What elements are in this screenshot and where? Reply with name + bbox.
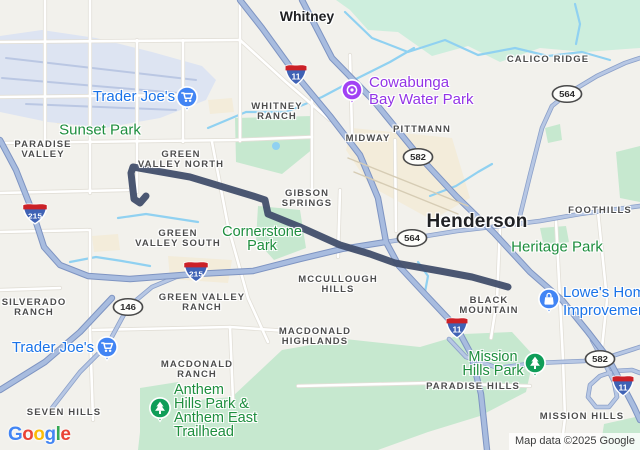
label-silverado-ranch-line: RANCH <box>2 308 67 318</box>
label-black-mountain: BLACKMOUNTAIN <box>459 296 518 316</box>
label-henderson-line: Henderson <box>426 211 527 233</box>
label-whitney[interactable]: Whitney <box>280 8 334 24</box>
label-paradise-hills: PARADISE HILLS <box>426 382 520 392</box>
label-silverado-ranch: SILVERADORANCH <box>2 298 67 318</box>
label-green-valley-south-line: VALLEY SOUTH <box>135 239 221 249</box>
label-mission-hills-park[interactable]: MissionHills Park <box>462 350 523 378</box>
label-trader-joes-south[interactable]: Trader Joe's <box>12 339 94 357</box>
label-whitney-ranch: WHITNEYRANCH <box>251 102 303 122</box>
label-mccullough-hills-line: HILLS <box>298 285 378 295</box>
label-macdonald-ranch-line: RANCH <box>161 370 233 380</box>
label-green-valley-ranch: GREEN VALLEYRANCH <box>159 293 245 313</box>
label-foothills: FOOTHILLS <box>568 206 632 216</box>
label-anthem-hills-park[interactable]: AnthemHills Park &Anthem EastTrailhead <box>174 383 257 439</box>
label-calico-ridge: CALICO RIDGE <box>507 55 589 65</box>
label-midway: MIDWAY <box>346 134 391 144</box>
label-whitney-line: Whitney <box>280 8 334 24</box>
label-mission-hills-park-line: Hills Park <box>462 364 523 378</box>
google-logo-letter: G <box>8 424 22 445</box>
google-logo-letter: g <box>45 424 56 445</box>
label-whitney-ranch-line: RANCH <box>251 112 303 122</box>
label-paradise-valley-line: VALLEY <box>14 150 71 160</box>
label-trader-joes-north-line: Trader Joe's <box>93 88 175 106</box>
label-cowabunga[interactable]: CowabungaBay Water Park <box>369 74 473 108</box>
label-green-valley-ranch-line: RANCH <box>159 303 245 313</box>
label-foothills-line: FOOTHILLS <box>568 206 632 216</box>
label-anthem-hills-park-line: Trailhead <box>174 425 257 439</box>
label-paradise-valley: PARADISEVALLEY <box>14 140 71 160</box>
google-logo-letter: o <box>33 424 44 445</box>
google-logo[interactable]: Google <box>8 424 70 446</box>
google-logo-letter: o <box>22 424 33 445</box>
label-cowabunga-line: Cowabunga <box>369 74 473 91</box>
label-macdonald-ranch: MACDONALDRANCH <box>161 360 233 380</box>
label-sunset-park[interactable]: Sunset Park <box>59 123 141 138</box>
label-heritage-park-line: Heritage Park <box>511 240 603 255</box>
label-pittmann: PITTMANN <box>393 125 451 135</box>
label-seven-hills-line: SEVEN HILLS <box>27 408 101 418</box>
label-cowabunga-line: Bay Water Park <box>369 91 473 108</box>
label-henderson[interactable]: Henderson <box>426 211 527 233</box>
label-anthem-hills-park-line: Hills Park & <box>174 397 257 411</box>
label-lowes[interactable]: Lowe's HomeImprovement <box>563 284 640 320</box>
label-green-valley-south: GREENVALLEY SOUTH <box>135 229 221 249</box>
label-cornerstone-park[interactable]: CornerstonePark <box>222 225 302 253</box>
label-seven-hills: SEVEN HILLS <box>27 408 101 418</box>
label-mission-hills: MISSION HILLS <box>540 412 625 422</box>
label-macdonald-highlands-line: HIGHLANDS <box>279 337 351 347</box>
label-cornerstone-park-line: Park <box>222 239 302 253</box>
label-cornerstone-park-line: Cornerstone <box>222 225 302 239</box>
label-midway-line: MIDWAY <box>346 134 391 144</box>
map-canvas[interactable]: 111111215215582582564564146 WhitneyWHITN… <box>0 0 640 450</box>
label-mission-hills-line: MISSION HILLS <box>540 412 625 422</box>
label-gibson-springs-line: SPRINGS <box>282 199 332 209</box>
label-paradise-hills-line: PARADISE HILLS <box>426 382 520 392</box>
label-heritage-park[interactable]: Heritage Park <box>511 240 603 255</box>
label-trader-joes-north[interactable]: Trader Joe's <box>93 88 175 106</box>
label-calico-ridge-line: CALICO RIDGE <box>507 55 589 65</box>
label-trader-joes-south-line: Trader Joe's <box>12 339 94 357</box>
label-mission-hills-park-line: Mission <box>462 350 523 364</box>
label-mccullough-hills: MCCULLOUGHHILLS <box>298 275 378 295</box>
label-green-valley-north: GREENVALLEY NORTH <box>138 150 224 170</box>
label-macdonald-highlands: MACDONALDHIGHLANDS <box>279 327 351 347</box>
map-labels-layer: WhitneyWHITNEYRANCHTrader Joe'sCowabunga… <box>0 0 640 450</box>
google-logo-letter: e <box>60 424 70 445</box>
label-green-valley-north-line: VALLEY NORTH <box>138 160 224 170</box>
label-lowes-line: Lowe's Home <box>563 284 640 302</box>
label-pittmann-line: PITTMANN <box>393 125 451 135</box>
label-anthem-hills-park-line: Anthem <box>174 383 257 397</box>
label-black-mountain-line: MOUNTAIN <box>459 306 518 316</box>
label-gibson-springs: GIBSONSPRINGS <box>282 189 332 209</box>
map-attribution: Map data ©2025 Google <box>509 433 640 450</box>
label-anthem-hills-park-line: Anthem East <box>174 411 257 425</box>
label-lowes-line: Improvement <box>563 302 640 320</box>
label-sunset-park-line: Sunset Park <box>59 123 141 138</box>
